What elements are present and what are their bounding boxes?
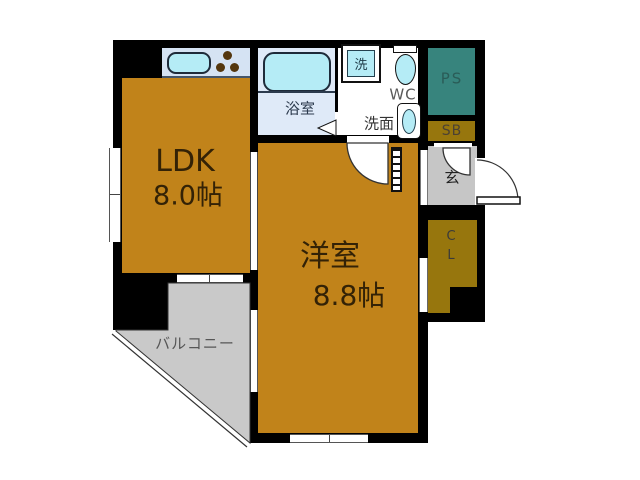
window-ldk-balcony — [177, 274, 243, 283]
stove-burner-icon — [230, 63, 239, 72]
bathtub-edge-line — [258, 91, 335, 93]
washing-machine-label: 洗 — [354, 54, 367, 73]
ldk-name-label: LDK — [155, 145, 215, 180]
window-tick — [329, 435, 330, 442]
wall-kitchen-corner — [113, 40, 162, 82]
entrance-step-hatch — [391, 147, 402, 192]
western-room-size-label: 8.8帖 — [313, 280, 386, 312]
entrance-label: 玄 — [444, 169, 459, 186]
hatch-lines — [393, 149, 400, 190]
window-western-balcony — [250, 310, 258, 392]
floor-plan: 洗 LDK 8.0帖 洋室 8.8帖 浴室 WC 洗面 PS SB 玄 C L … — [0, 0, 640, 480]
bathroom-label: 浴室 — [285, 100, 315, 117]
wall-top — [113, 40, 485, 48]
window-ldk-left — [109, 148, 121, 242]
window-tick — [110, 194, 120, 195]
toilet-label: WC — [389, 86, 416, 103]
shoe-box-label: SB — [442, 123, 463, 139]
sliding-door-ldk-western — [250, 152, 258, 270]
closet-lower — [428, 287, 450, 313]
washing-machine: 洗 — [347, 50, 375, 77]
western-room-name-label: 洋室 — [300, 240, 360, 275]
wall-balcony-block — [113, 283, 168, 330]
wall-closet-notch — [450, 287, 485, 322]
stove-burner-icon — [223, 51, 232, 60]
entrance-door-frame — [434, 143, 472, 147]
wall-closet-cap — [418, 313, 450, 322]
closet-label: C L — [446, 228, 455, 266]
closet-door — [419, 258, 428, 312]
washroom-door-gap — [347, 136, 389, 143]
balcony-label: バルコニー — [155, 335, 235, 352]
kitchen-sink — [167, 52, 211, 74]
window-tick — [209, 275, 210, 282]
ldk-size-label: 8.0帖 — [153, 180, 223, 211]
pipe-space-label: PS — [441, 70, 464, 87]
toilet-tank — [393, 45, 417, 53]
bathtub — [263, 52, 331, 92]
wall-entrance-bottom — [418, 205, 485, 220]
window-western-bottom — [290, 434, 368, 443]
washbasin-bowl — [402, 109, 416, 134]
toilet-bowl — [395, 54, 416, 85]
opening-entrance-hall — [420, 150, 428, 205]
wall-bath-wash-separator — [335, 48, 338, 112]
entrance-door-gap — [475, 158, 485, 205]
stove-burner-icon — [216, 63, 225, 72]
washroom-label: 洗面 — [364, 115, 394, 132]
